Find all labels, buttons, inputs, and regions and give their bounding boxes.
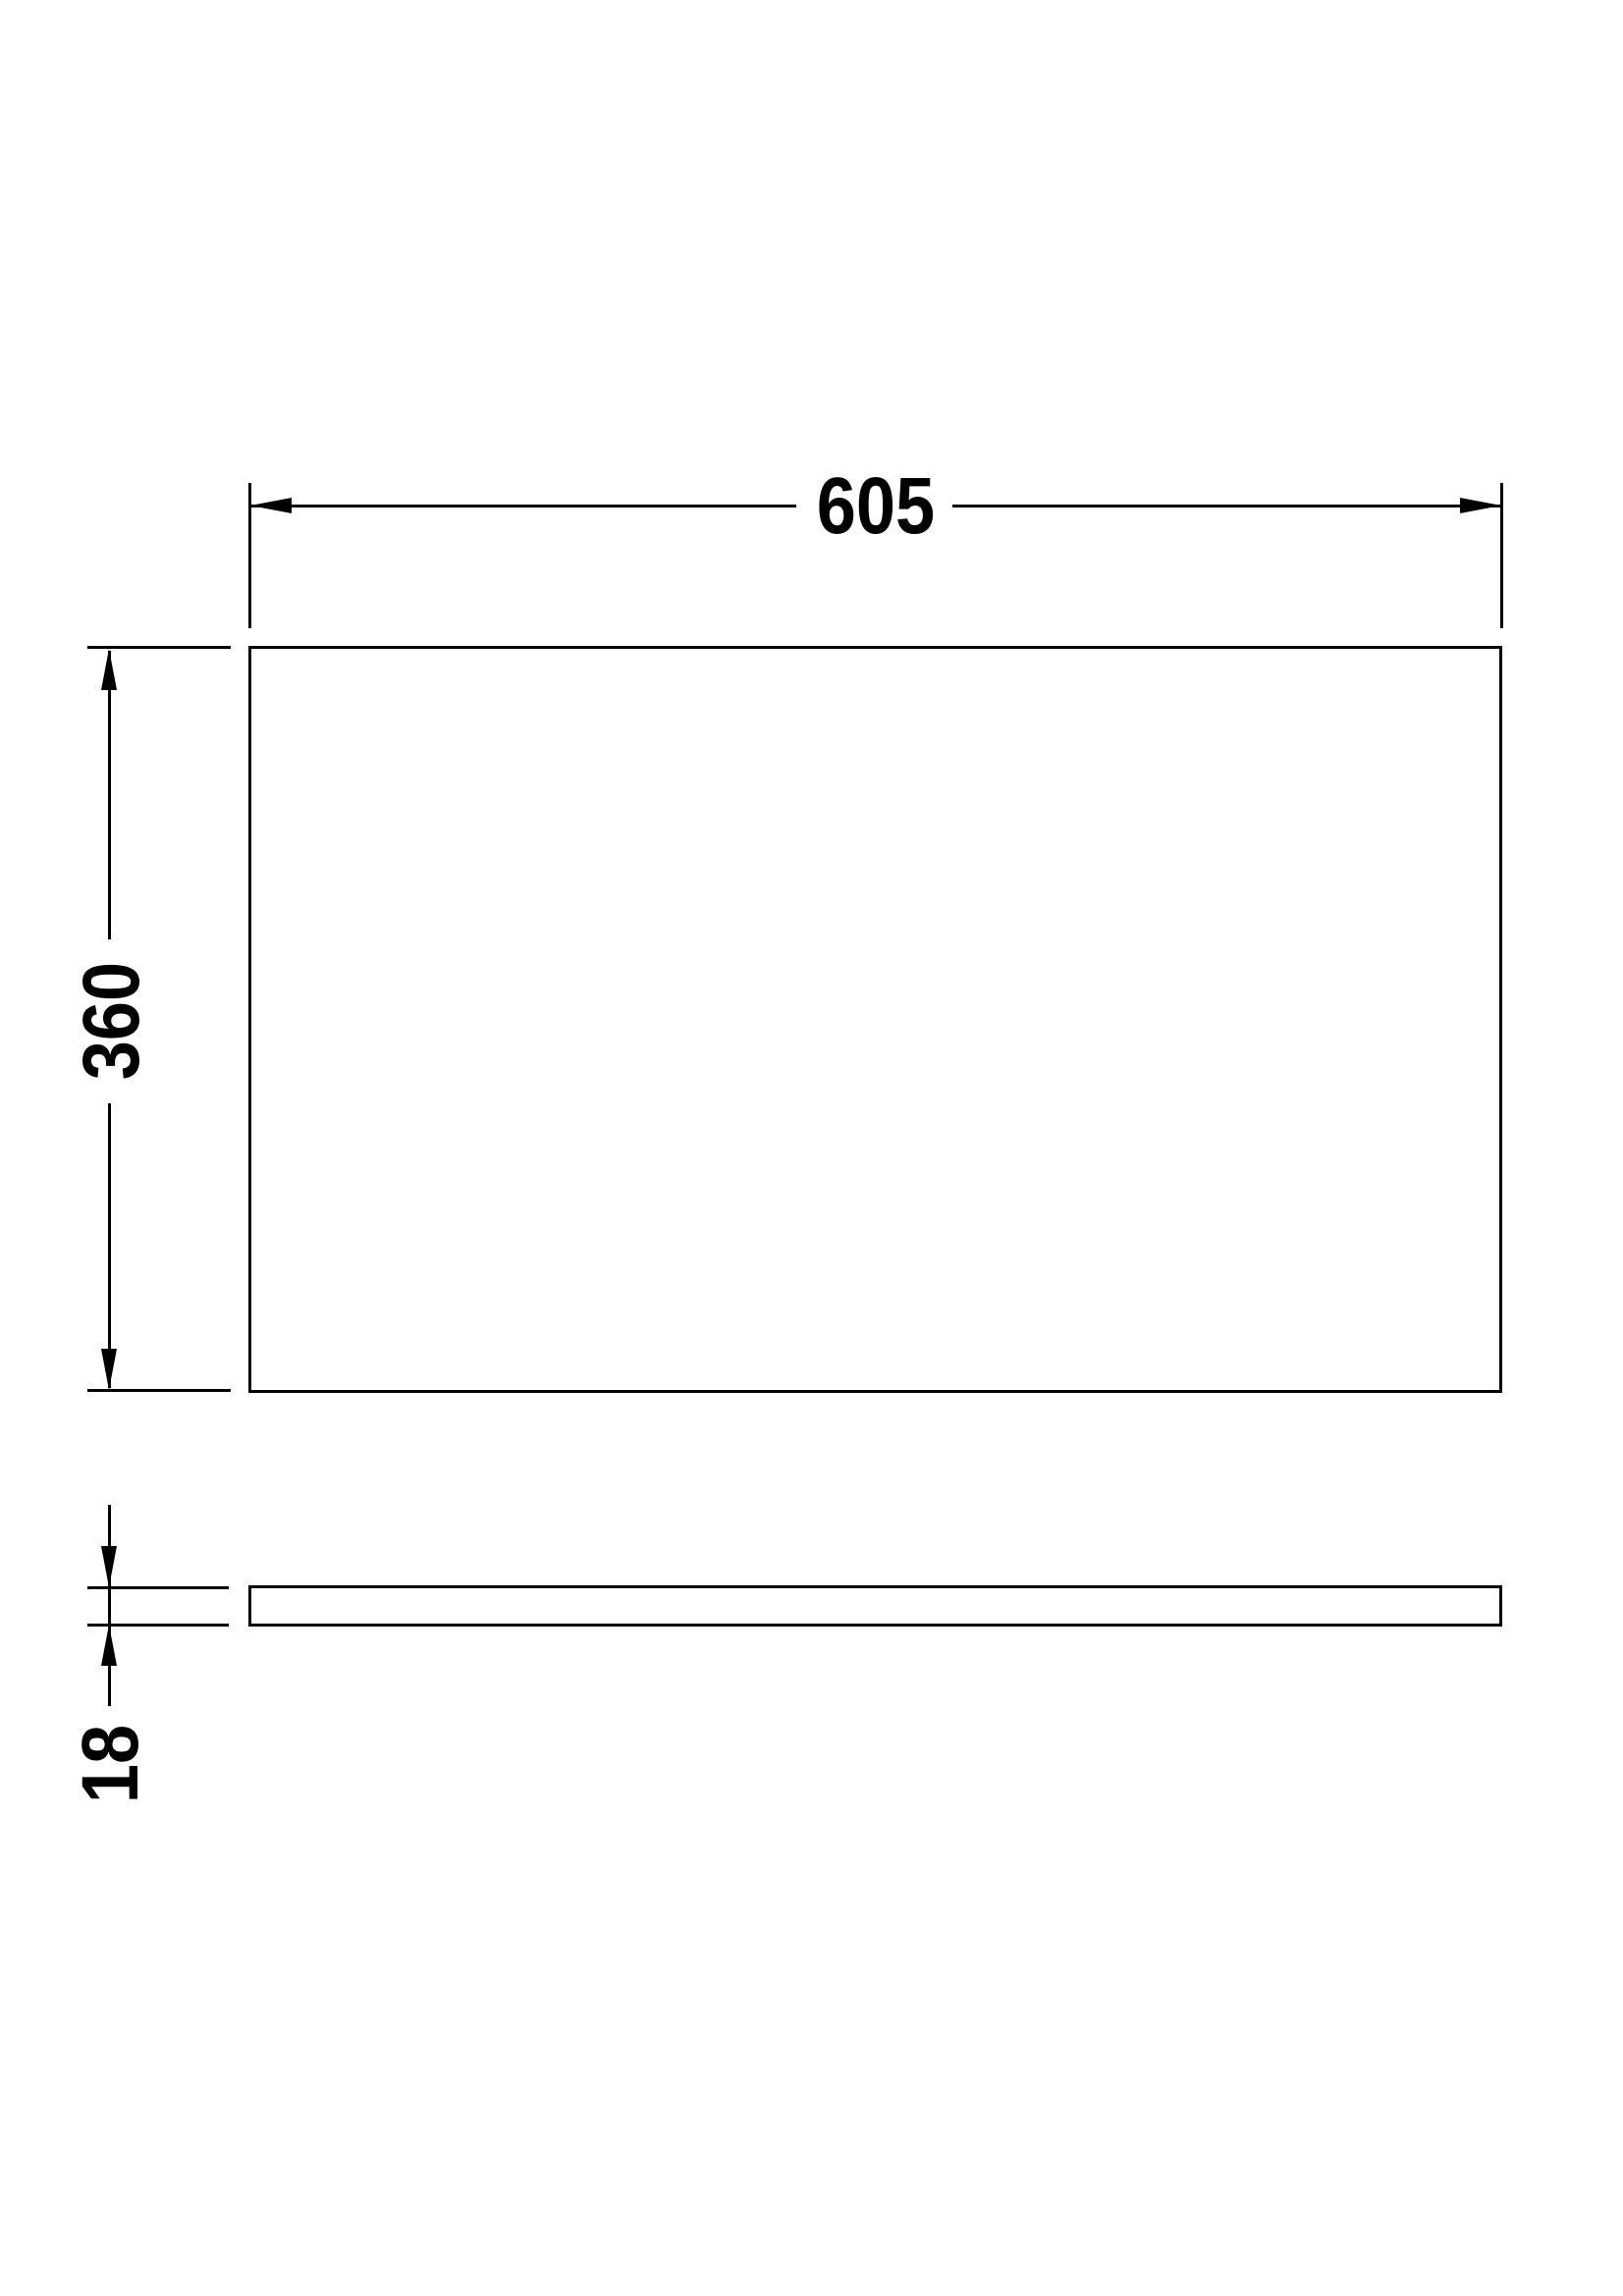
edge-view-outline xyxy=(248,1585,1502,1627)
front-view-outline xyxy=(248,646,1502,1393)
dim-width-arrowhead-right-icon xyxy=(1460,498,1501,513)
dim-height-label: 360 xyxy=(68,891,156,1150)
dim-thickness-label: 18 xyxy=(67,1634,155,1894)
dim-width-arrowhead-left-icon xyxy=(250,498,292,513)
drawing-canvas: 605 360 18 xyxy=(0,0,1623,2296)
dim-height-arrowhead-top-icon xyxy=(101,649,117,690)
dim-thickness-arrowhead-top-icon xyxy=(101,1546,117,1587)
dim-width-line-right-segment xyxy=(952,505,1500,507)
dim-width-line-left-segment xyxy=(251,505,796,507)
dim-width-label: 605 xyxy=(746,462,1005,551)
dim-height-arrowhead-bottom-icon xyxy=(101,1349,117,1390)
